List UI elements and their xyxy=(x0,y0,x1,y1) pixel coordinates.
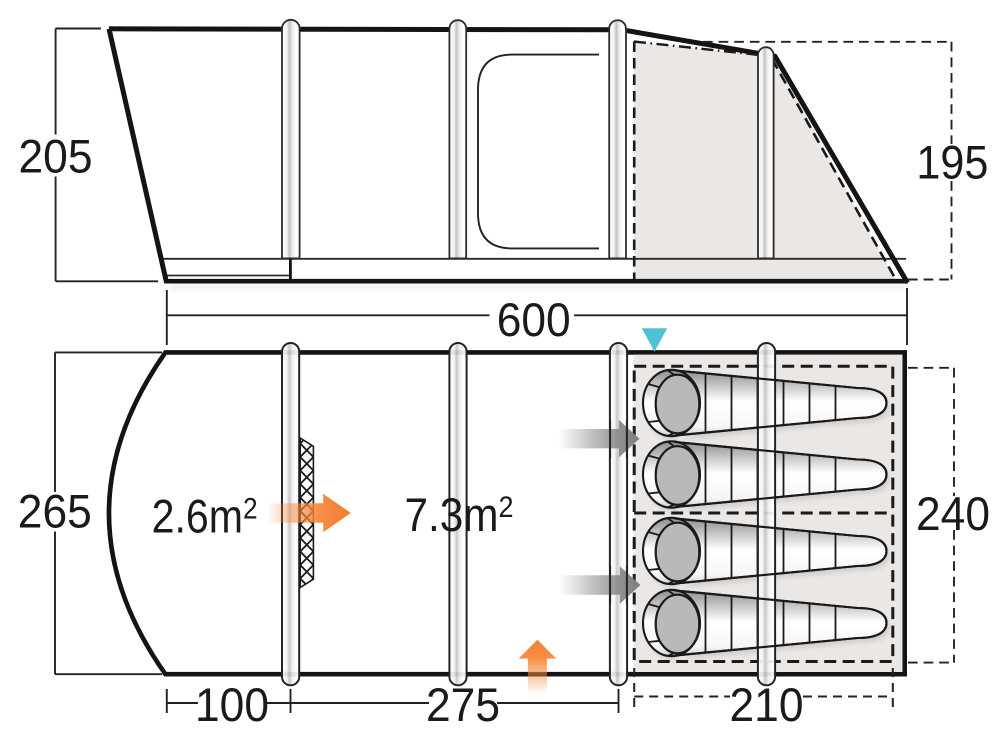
svg-text:195: 195 xyxy=(916,136,988,189)
svg-text:265: 265 xyxy=(18,486,92,539)
svg-text:7.3m2: 7.3m2 xyxy=(405,490,514,542)
svg-text:210: 210 xyxy=(730,679,804,732)
svg-text:2.6m2: 2.6m2 xyxy=(152,491,258,543)
svg-text:240: 240 xyxy=(916,488,990,541)
svg-text:600: 600 xyxy=(497,294,571,347)
svg-text:100: 100 xyxy=(195,679,269,732)
svg-text:275: 275 xyxy=(426,679,500,732)
svg-text:205: 205 xyxy=(19,130,93,183)
